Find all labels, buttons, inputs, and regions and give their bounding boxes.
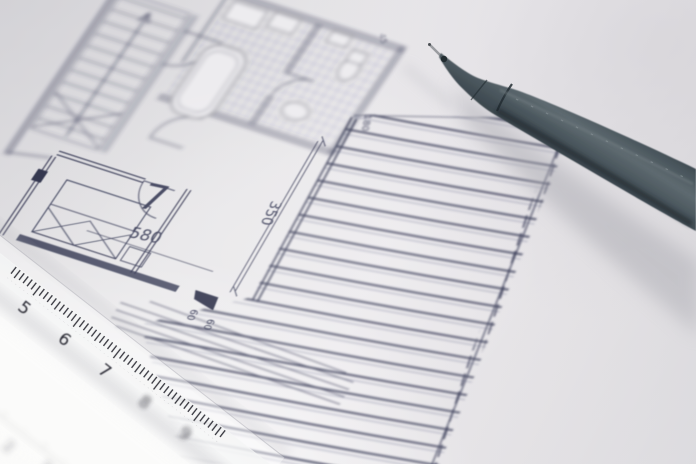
wall-jog — [8, 145, 51, 164]
pen-tip-collar — [441, 56, 447, 62]
bedroom-top-wall — [57, 151, 145, 182]
pen-needle-point — [428, 43, 431, 46]
photo-floor-plan-scene: 180 — [0, 0, 696, 464]
dimension-350: 350 — [256, 200, 284, 227]
staircase — [31, 0, 197, 152]
bedroom-left-wall — [0, 156, 55, 235]
room-number-label: 7 — [130, 176, 175, 221]
scene-canvas: 180 — [0, 0, 696, 464]
pen-tip-shadow — [404, 66, 452, 106]
dimension-580: 580 — [126, 224, 166, 247]
wall-marker — [31, 169, 48, 183]
